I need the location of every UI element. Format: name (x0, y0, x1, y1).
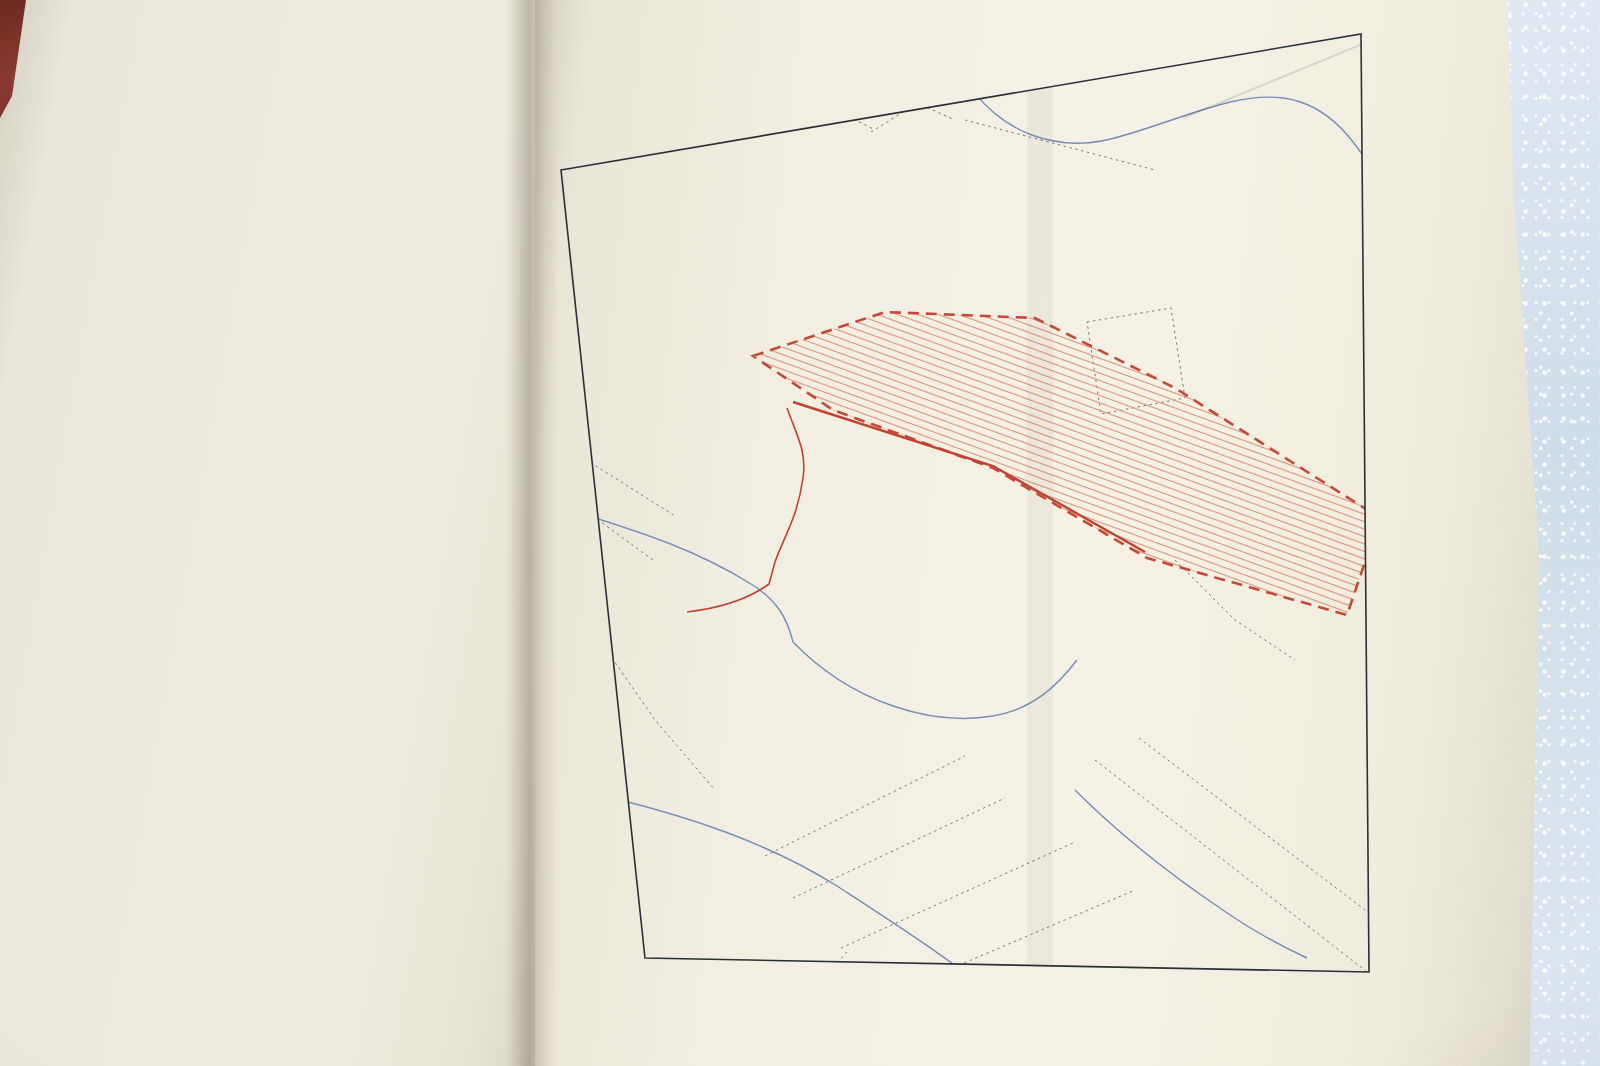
left-book-page (0, 0, 548, 1066)
basin-boundary (753, 312, 1380, 615)
fold-crease (1027, 30, 1053, 980)
map-content (549, 30, 1415, 1010)
map-svg (535, 0, 1545, 1066)
page-text-block (0, 0, 548, 943)
annotation-lines (79, 686, 81, 694)
plate-page (535, 0, 1545, 1066)
formula-rows (69, 684, 72, 701)
book-photo (0, 0, 1600, 1066)
formula-annotations (76, 686, 82, 695)
fold-line (1183, 38, 1377, 118)
